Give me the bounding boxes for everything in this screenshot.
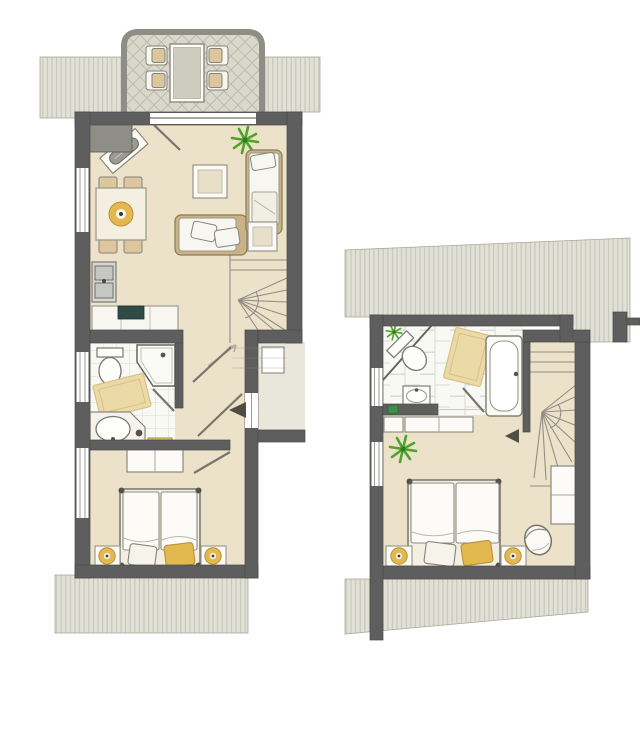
lamp-icon (205, 548, 221, 564)
knee-wall-block (90, 125, 132, 152)
window (77, 352, 89, 402)
ground-floor-plan (40, 32, 320, 633)
under-stair-closet (262, 347, 284, 373)
pillow-yellow (461, 540, 494, 566)
daybed (246, 150, 282, 234)
towel (388, 405, 399, 414)
roof-hatch-top-right (265, 57, 320, 112)
shelf-unit (551, 466, 577, 524)
sofa (175, 215, 247, 255)
pillow-white (424, 541, 456, 566)
terrace (124, 32, 262, 116)
closets (384, 417, 473, 432)
nightstand-left (95, 546, 120, 566)
roof-hatch-top-left (40, 57, 122, 118)
floorplan-page (0, 0, 640, 756)
nightstand-right (501, 546, 526, 566)
window (372, 442, 383, 486)
bathtub (486, 336, 522, 416)
pillow-white (128, 543, 158, 568)
double-bed (119, 488, 202, 569)
side-table (248, 222, 277, 251)
window (372, 368, 383, 406)
floor-plan-canvas (0, 0, 640, 756)
double-bed-upper (407, 479, 502, 569)
upper-floor-plan (345, 238, 640, 640)
lamp-icon (99, 548, 115, 564)
washbasin (403, 386, 430, 405)
cooktop (118, 306, 144, 319)
window (77, 448, 89, 518)
pillow-yellow (164, 542, 195, 567)
nightstand-left (386, 546, 412, 566)
lamp-icon (505, 548, 521, 564)
toilet-brush (136, 430, 143, 437)
roof-hatch-bottom (55, 575, 248, 633)
window (77, 168, 89, 232)
lamp-icon (391, 548, 407, 564)
coffee-table (193, 165, 227, 198)
nightstand-right (201, 546, 226, 566)
